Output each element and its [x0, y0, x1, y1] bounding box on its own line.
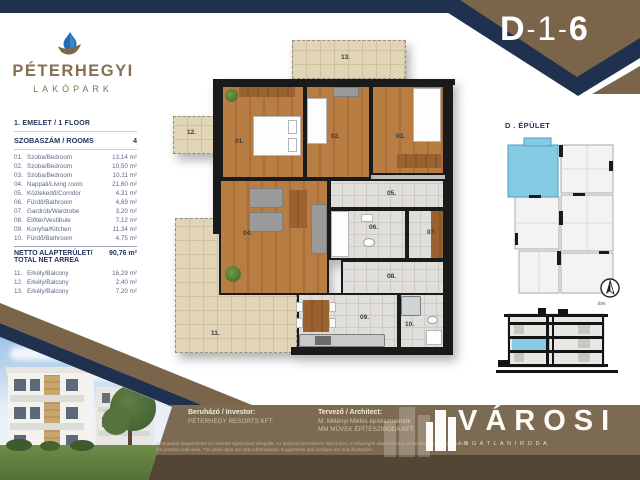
room-num: 05. — [14, 189, 27, 198]
rooms-header: SZOBASZÁM / ROOMS 4 — [14, 132, 137, 150]
compass-icon — [601, 279, 619, 297]
unit-dash-1: - — [527, 14, 536, 45]
net-area-label-en: TOTAL NET ARREA — [14, 257, 93, 264]
pillow-icon — [288, 120, 297, 134]
plan-label-03: 03. — [396, 133, 405, 140]
wardrobe-icon — [239, 87, 295, 97]
room-name: Szoba/Bedroom — [27, 162, 112, 171]
window — [66, 407, 78, 419]
room-area: 16,29 m² — [112, 269, 137, 278]
room-name: Előtér/Vestibule — [27, 216, 116, 225]
investor-block: Beruházó / Investor: PÉTERHEGY RESORTS K… — [188, 409, 274, 426]
room-area: 4,31 m² — [116, 189, 137, 198]
toilet-icon — [363, 238, 375, 247]
room-name: Szoba/Bedroom — [27, 171, 113, 180]
window — [30, 407, 40, 419]
balcony-row: 12.Erkély/Balcony2,40 m² — [14, 278, 137, 287]
dining-table-icon — [303, 300, 329, 332]
room-row: 10.Fürdő/Bathroom4,75 m² — [14, 234, 137, 243]
room-name: Szoba/Bedroom — [27, 153, 112, 162]
section-highlight — [512, 339, 550, 350]
room-area: 3,20 m² — [116, 207, 137, 216]
plant-icon — [225, 89, 238, 102]
desk-icon — [397, 154, 441, 168]
room-num: 01. — [14, 153, 27, 162]
wall-left-mid — [213, 178, 219, 234]
kitchen-counter-icon — [299, 334, 385, 347]
room-name: Erkély/Balcony — [27, 278, 116, 287]
room-area: 4,75 m² — [116, 234, 137, 243]
net-area-row: NETTO ALAPTERÜLET/ TOTAL NET ARREA 90,76… — [14, 246, 137, 266]
rooms-count: 4 — [133, 136, 137, 145]
room-name: Nappali/Living room — [27, 180, 112, 189]
unit-label: D - 1 - 6 — [500, 10, 636, 49]
room-row: 04.Nappali/Living room21,60 m² — [14, 180, 137, 189]
double-bed-icon — [253, 116, 301, 156]
room-area: 7,12 m² — [116, 216, 137, 225]
sofa-icon — [249, 188, 283, 208]
room-row: 07.Gardrób/Wardrobe3,20 m² — [14, 207, 137, 216]
unit-dash-2: - — [558, 14, 567, 45]
room-area: 21,60 m² — [112, 180, 137, 189]
unit-floor: 1 — [537, 10, 556, 49]
room-num: 03. — [14, 171, 27, 180]
chair-icon — [296, 302, 303, 312]
desk-icon — [333, 87, 359, 97]
stove-icon — [315, 336, 331, 345]
balcony-row: 11.Erkély/Balcony16,29 m² — [14, 269, 137, 278]
window — [30, 379, 40, 391]
room-area: 2,40 m² — [116, 278, 137, 287]
room-num: 12. — [14, 278, 27, 287]
tree-icon — [102, 407, 130, 435]
room-schedule: 1. EMELET / 1 FLOOR SZOBASZÁM / ROOMS 4 … — [14, 120, 137, 296]
room-name: Gardrób/Wardrobe — [27, 207, 116, 216]
investor-name: PÉTERHEGY RESORTS KFT. — [188, 418, 274, 426]
room-name: Fürdő/Bathroom — [27, 198, 116, 207]
plan-label-13: 13. — [341, 54, 350, 61]
net-area-label-hu: NETTO ALAPTERÜLET/ — [14, 250, 93, 257]
room-num: 04. — [14, 180, 27, 189]
room-num: 07. — [14, 207, 27, 216]
window — [102, 393, 110, 403]
rooms-header-label: SZOBASZÁM / ROOMS — [14, 136, 94, 145]
brand-name: VÁROSI — [458, 405, 617, 438]
key-plan — [503, 133, 623, 303]
room-num: 02. — [14, 162, 27, 171]
bathtub-icon — [331, 211, 349, 257]
chair-icon — [329, 302, 336, 312]
net-area-label: NETTO ALAPTERÜLET/ TOTAL NET ARREA — [14, 250, 93, 264]
unit-building: D — [500, 10, 525, 49]
sofa-icon — [249, 212, 283, 232]
plan-label-02: 02. — [331, 133, 340, 140]
wall-right — [445, 79, 453, 353]
sink-icon — [361, 214, 373, 222]
room-num: 09. — [14, 225, 27, 234]
plan-label-09: 09. — [360, 314, 369, 321]
pillow-icon — [288, 138, 297, 152]
plan-label-10: 10. — [405, 321, 414, 328]
wall-bottom — [291, 347, 453, 355]
room-num: 13. — [14, 287, 27, 296]
wall-left-upper — [213, 79, 221, 180]
plant-icon — [225, 266, 241, 282]
brand-subtitle: I N G A T L A N I R O D A — [459, 441, 548, 447]
plan-label-04: 04. — [243, 230, 252, 237]
room-name: Közlekedő/Corridor — [27, 189, 116, 198]
plan-label-08: 08. — [387, 273, 396, 280]
plan-label-05: 05. — [387, 190, 396, 197]
disclaimer: A megadott alapterületek és méretek tájé… — [156, 441, 634, 452]
sofa-icon — [311, 204, 327, 254]
room-name: Konyha/Kitchen — [27, 225, 113, 234]
brochure-page: D - 1 - 6 PÉTERHEGYI LAKÓPARK 1. EMELET … — [0, 0, 640, 480]
single-bed-icon — [307, 98, 327, 144]
wall-top — [213, 79, 455, 85]
balcony-row: 13.Erkély/Balcony7,20 m² — [14, 287, 137, 296]
logo-subtitle: LAKÓPARK — [8, 84, 138, 94]
coffee-table-icon — [289, 190, 307, 228]
toilet-icon — [427, 316, 438, 324]
balcony-rows: 11.Erkély/Balcony16,29 m² 12.Erkély/Balc… — [14, 266, 137, 296]
room-row: 05.Közlekedő/Corridor4,31 m² — [14, 189, 137, 198]
disclaimer-en: the partition wall-axes. The given data … — [156, 447, 634, 453]
chair-icon — [329, 318, 336, 328]
room-name: Fürdő/Bathroom — [27, 234, 116, 243]
room-row: 08.Előtér/Vestibule7,12 m² — [14, 216, 137, 225]
room-row: 06.Fürdő/Bathroom4,69 m² — [14, 198, 137, 207]
bush — [70, 440, 94, 451]
room-name: Erkély/Balcony — [27, 287, 116, 296]
balcony-rail — [10, 423, 84, 430]
room-rows: 01.Szoba/Bedroom13,14 m² 02.Szoba/Bedroo… — [14, 150, 137, 243]
logo-name: PÉTERHEGYI — [8, 62, 138, 81]
room-area: 11,34 m² — [113, 225, 137, 234]
plan-label-12: 12. — [187, 129, 196, 136]
brand-building-icon — [426, 404, 456, 451]
room-area: 10,50 m² — [112, 162, 137, 171]
room-area: 7,20 m² — [116, 287, 137, 296]
bush — [6, 439, 32, 451]
window — [14, 379, 26, 391]
room-num: 06. — [14, 198, 27, 207]
washer-icon — [426, 330, 442, 345]
window — [14, 407, 26, 419]
bush — [40, 441, 60, 451]
investor-label: Beruházó / Investor: — [188, 409, 274, 416]
key-plan-highlight — [508, 138, 558, 197]
room-num: 11. — [14, 269, 27, 278]
room-num: 10. — [14, 234, 27, 243]
room-area: 10,11 m² — [113, 171, 137, 180]
room-row: 03.Szoba/Bedroom10,11 m² — [14, 171, 137, 180]
window — [66, 379, 78, 391]
room-row: 09.Konyha/Kitchen11,34 m² — [14, 225, 137, 234]
section-drawing — [494, 306, 620, 378]
keyplan-title: D . ÉPÜLET — [505, 121, 550, 130]
room-row: 02.Szoba/Bedroom10,50 m² — [14, 162, 137, 171]
plan-label-11: 11. — [211, 330, 220, 337]
logo-drop-icon — [56, 31, 84, 59]
room-num: 08. — [14, 216, 27, 225]
room-area: 13,14 m² — [112, 153, 137, 162]
floor-title: 1. EMELET / 1 FLOOR — [14, 120, 137, 132]
chair-icon — [296, 318, 303, 328]
room-area: 4,69 m² — [116, 198, 137, 207]
plan-label-06: 06. — [369, 224, 378, 231]
balcony-rail — [10, 395, 84, 402]
plan-label-07: 07. — [427, 229, 436, 236]
net-area-value: 90,76 m² — [109, 250, 137, 264]
room-name: Erkély/Balcony — [27, 269, 112, 278]
plan-label-01: 01. — [235, 138, 244, 145]
shower-icon — [401, 296, 421, 316]
room-row: 01.Szoba/Bedroom13,14 m² — [14, 153, 137, 162]
unit-number: 6 — [569, 10, 588, 49]
